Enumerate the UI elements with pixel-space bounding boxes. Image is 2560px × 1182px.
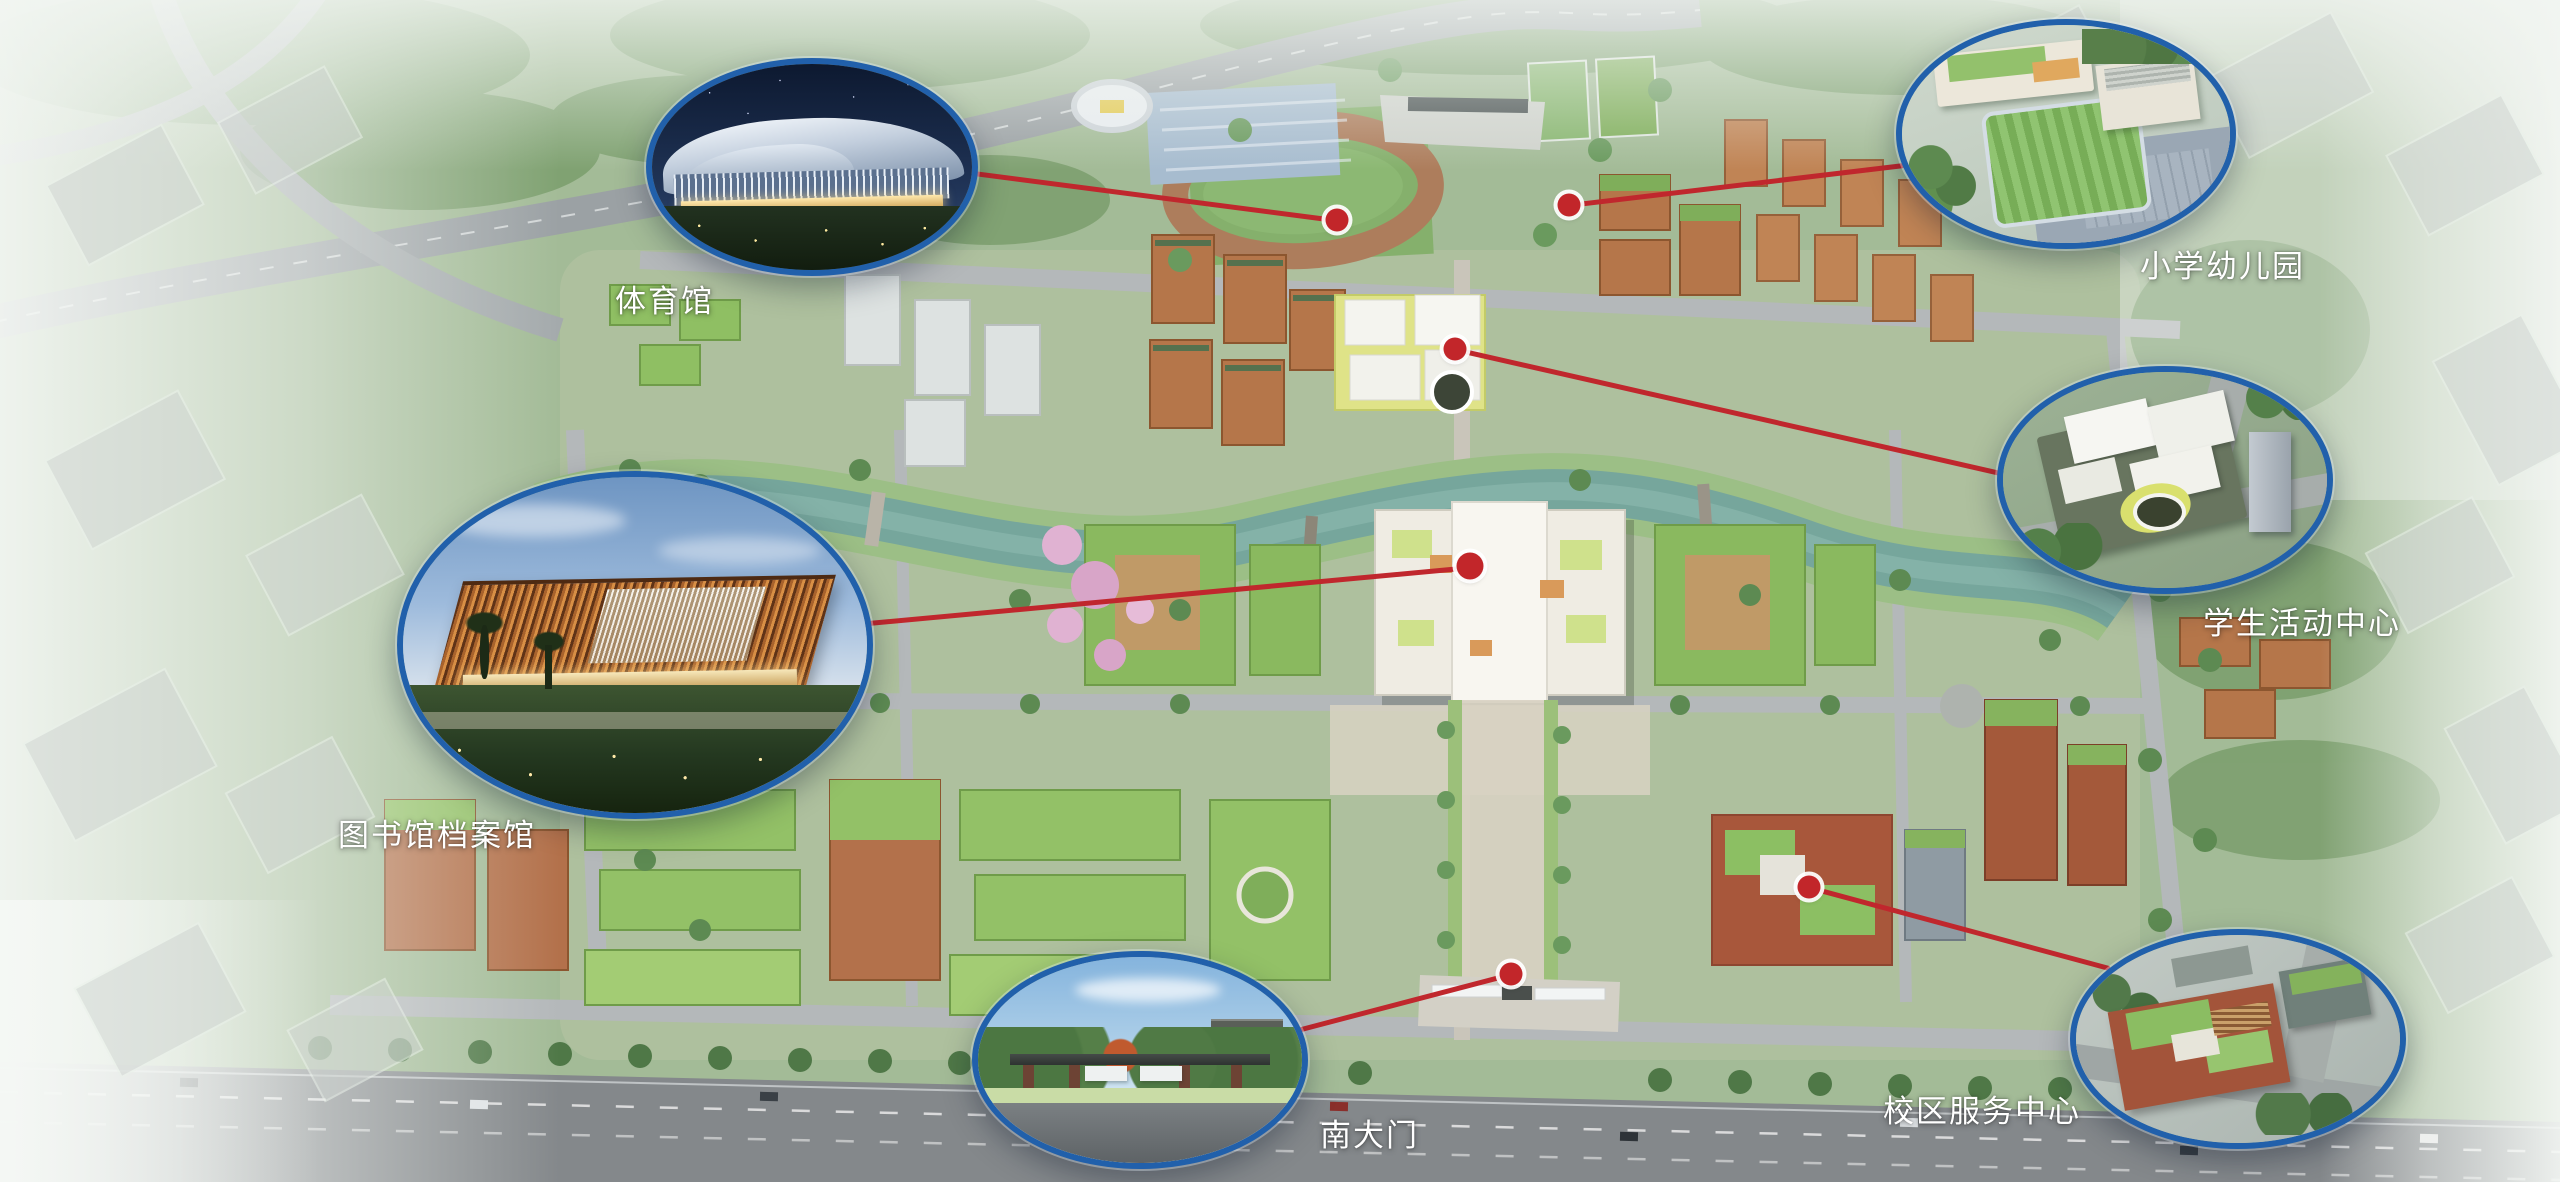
gate-brick-pier <box>1023 1065 1034 1088</box>
library-walkway <box>403 712 867 729</box>
library-building-map <box>1375 502 1634 706</box>
library-lawn-lamps <box>426 732 844 792</box>
label-campus-service-center: 校区服务中心 <box>1883 1086 2081 1131</box>
marker-student-activity-center <box>1444 338 1467 361</box>
gym-ground-lamps <box>671 212 953 257</box>
gate-name-wall <box>1085 1066 1127 1080</box>
gate-cloud <box>1075 978 1221 1003</box>
palm-trunk <box>545 645 552 689</box>
label-student-activity-center: 学生活动中心 <box>2203 598 2401 643</box>
marker-campus-service-center <box>1798 876 1821 899</box>
sac-circular-courtyard <box>2133 493 2186 531</box>
sac-tower <box>2249 432 2291 531</box>
callout-gymnasium <box>646 58 978 276</box>
marker-library-archives <box>1457 553 1484 580</box>
library-glass-atrium <box>588 587 766 664</box>
callout-south-gate <box>972 951 1308 1169</box>
gate-road <box>978 1103 1302 1163</box>
marker-primary-school <box>1558 194 1581 217</box>
gate-brick-pier <box>1069 1065 1080 1088</box>
palm-trunk <box>480 625 489 679</box>
campus-aerial-rendering: 体育馆 小学幼儿园 学生活动中心 <box>0 0 2560 1182</box>
label-gymnasium: 体育馆 <box>615 276 714 321</box>
callout-primary-school <box>1896 19 2236 249</box>
school-trees-left <box>1909 145 1981 219</box>
school-trees-top <box>2082 29 2213 64</box>
label-primary-school: 小学幼儿园 <box>2140 241 2305 286</box>
library-cloud <box>440 504 626 538</box>
callout-library-archives <box>397 471 873 819</box>
label-library-archives: 图书馆档案馆 <box>338 810 536 855</box>
label-south-gate: 南大门 <box>1320 1110 1419 1155</box>
sac-trees <box>2230 376 2321 419</box>
marker-gymnasium <box>1326 209 1349 232</box>
service-trees <box>2254 1093 2371 1135</box>
gate-brick-pier <box>1231 1065 1242 1088</box>
callout-student-activity-center <box>1997 366 2333 594</box>
gate-name-wall <box>1140 1066 1182 1080</box>
sac-trees <box>2009 523 2106 579</box>
gate-canopy <box>1010 1054 1269 1065</box>
marker-south-gate <box>1500 963 1523 986</box>
callout-campus-service-center <box>2070 929 2406 1149</box>
